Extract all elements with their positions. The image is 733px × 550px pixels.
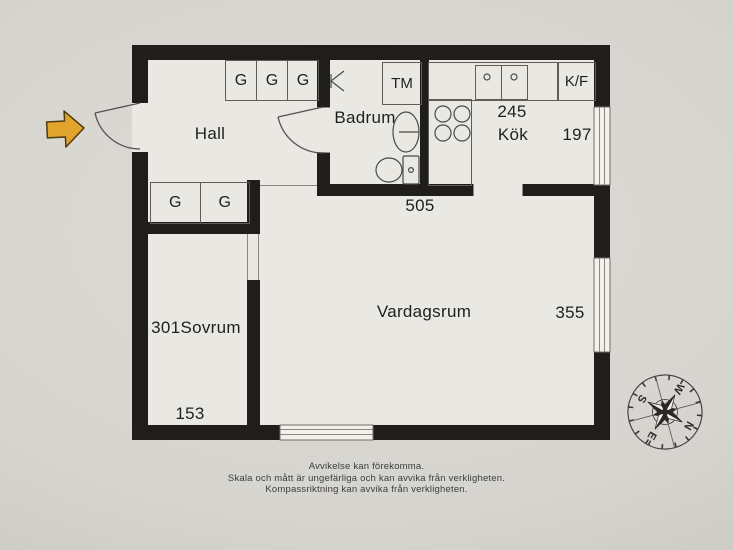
- compass-rose: N E S W: [614, 361, 715, 462]
- stove: [435, 106, 470, 141]
- bathroom-sink: [393, 112, 419, 152]
- kitchen-sink-drains: [484, 74, 517, 80]
- floor-plan: G G G G G TM K/F Hall Badrum 245 Kök 197…: [0, 0, 733, 550]
- vent-symbol: [331, 71, 344, 91]
- disclaimer-line-1: Avvikelse kan förekomma.: [0, 461, 733, 473]
- window-kok-east: [594, 107, 610, 185]
- disclaimer: Avvikelse kan förekomma. Skala och mått …: [0, 461, 733, 496]
- window-vardagsrum-south: [280, 425, 373, 440]
- toilet: [376, 156, 419, 184]
- disclaimer-line-3: Kompassriktning kan avvika från verkligh…: [0, 484, 733, 496]
- window-vardagsrum-east: [594, 258, 610, 352]
- entrance-door: [95, 103, 140, 149]
- disclaimer-line-2: Skala och mått är ungefärliga och kan av…: [0, 473, 733, 485]
- entrance-arrow-icon: [46, 110, 85, 148]
- badrum-door: [278, 107, 323, 153]
